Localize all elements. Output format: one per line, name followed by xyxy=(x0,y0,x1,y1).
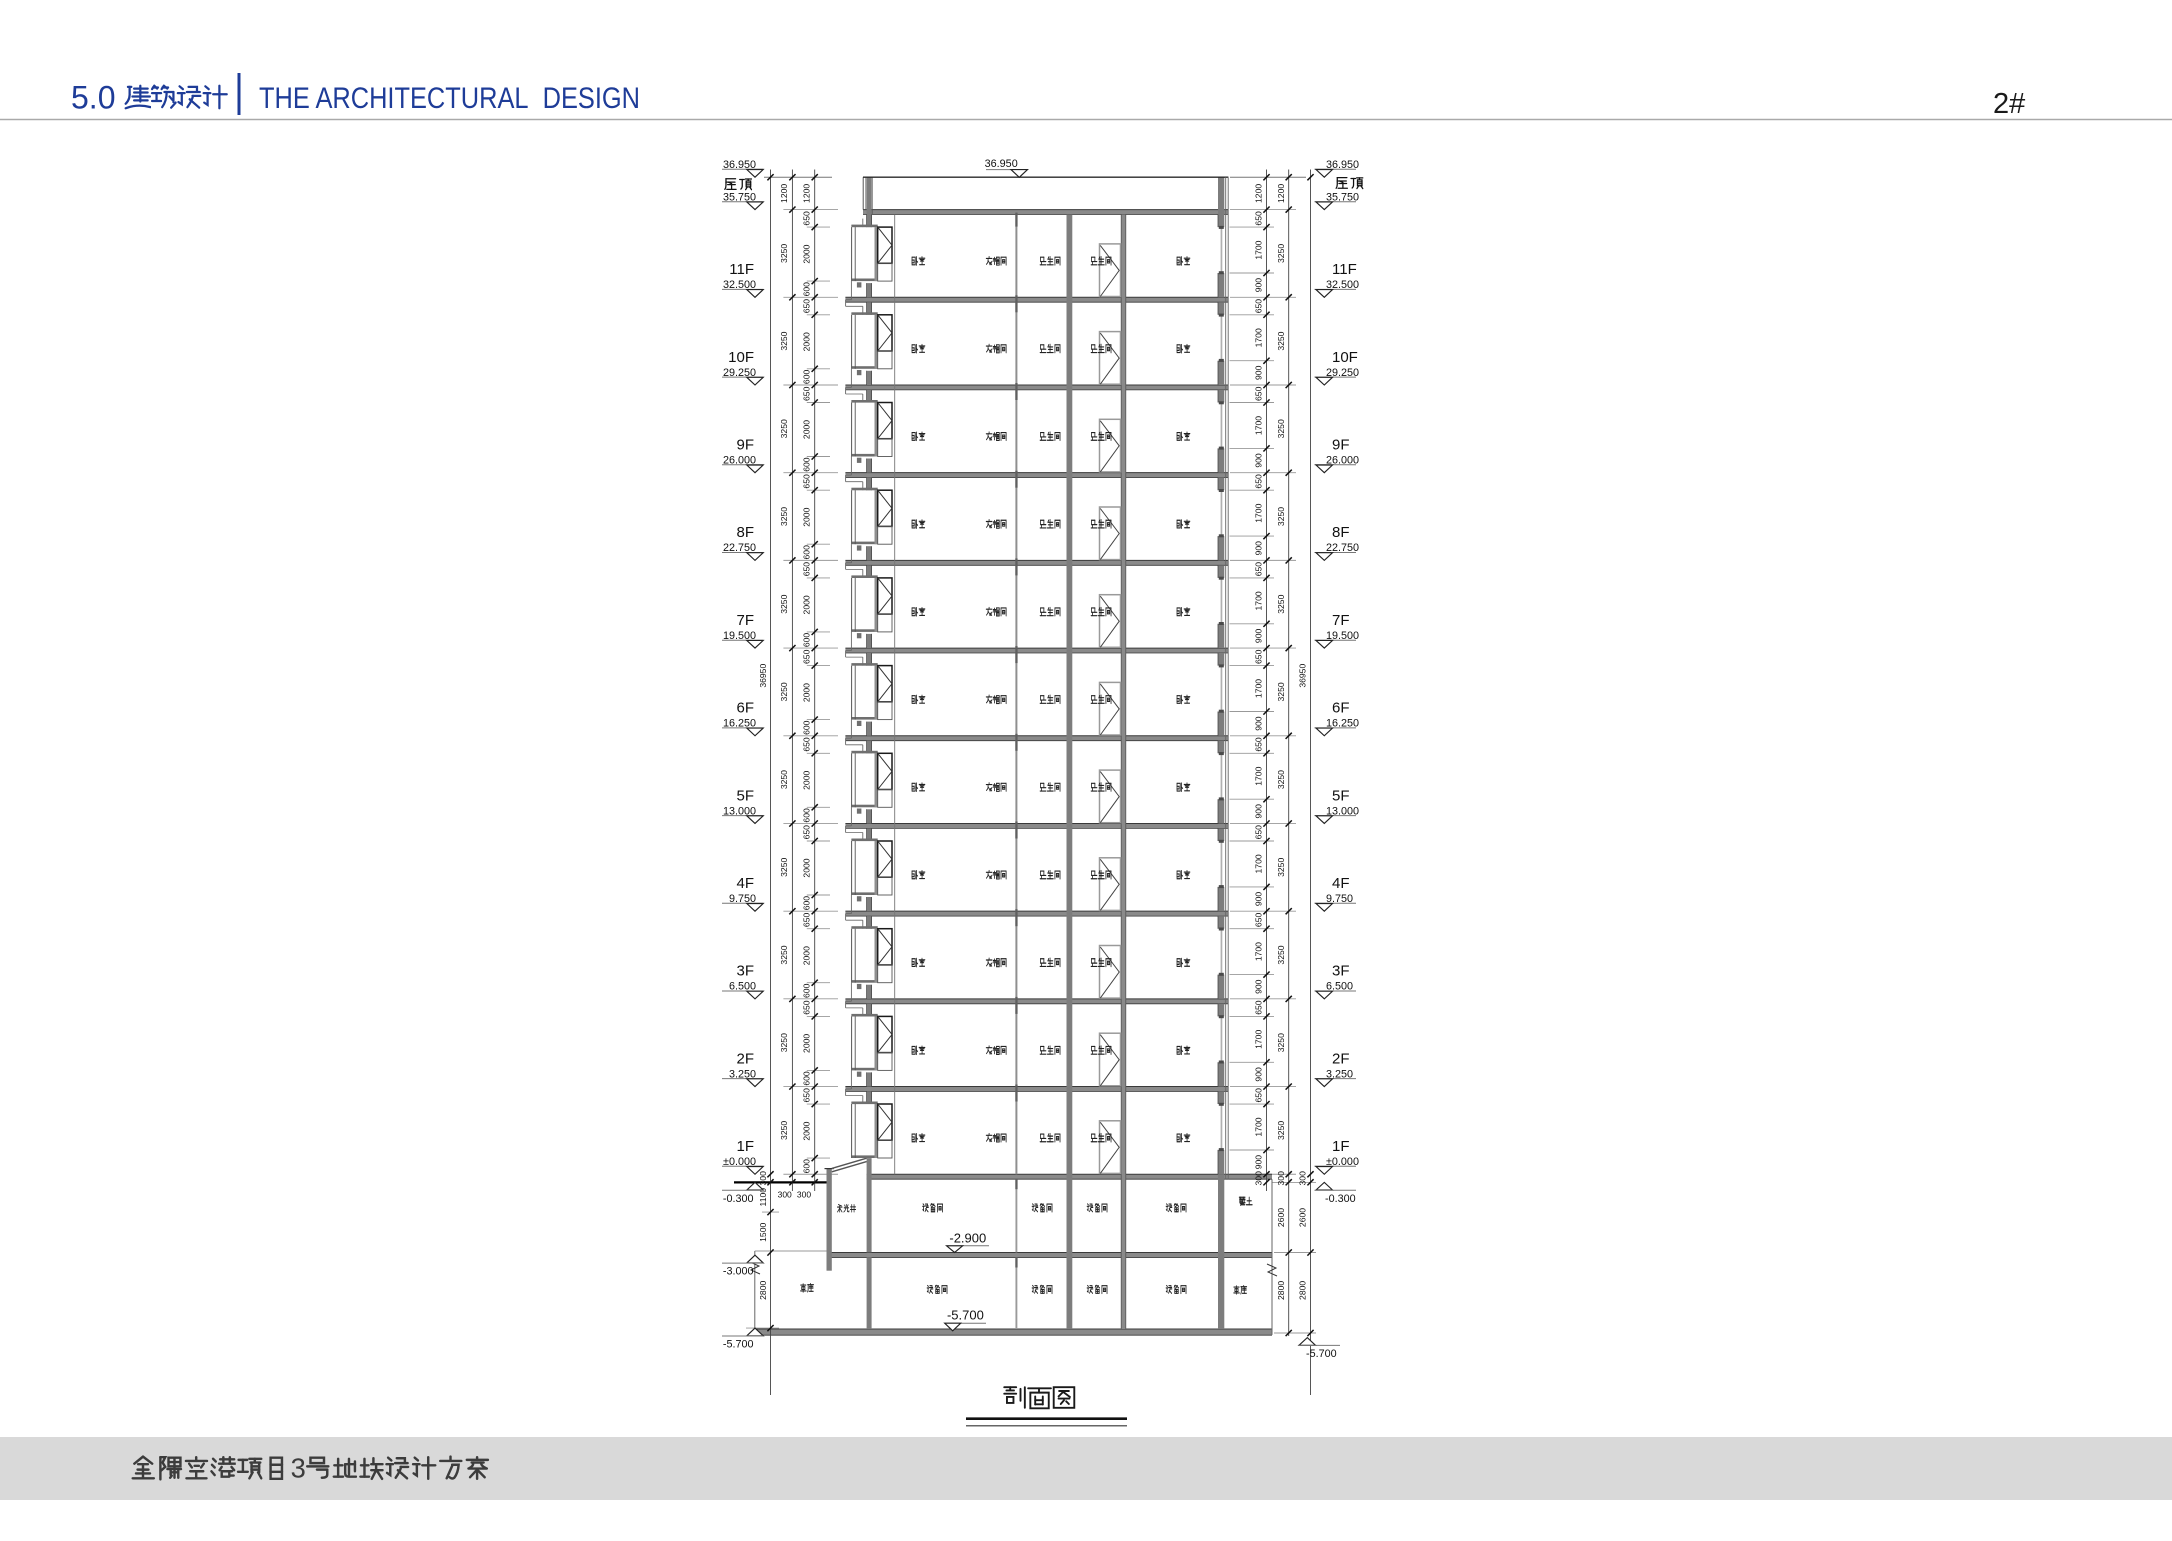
svg-text:36950: 36950 xyxy=(758,664,768,688)
svg-text:10F: 10F xyxy=(728,349,754,366)
svg-text:2#: 2# xyxy=(1993,88,2025,120)
svg-text:1700: 1700 xyxy=(1254,328,1264,347)
svg-text:2F: 2F xyxy=(736,1050,754,1067)
svg-text:5.0: 5.0 xyxy=(71,80,115,116)
svg-text:3250: 3250 xyxy=(1276,1121,1286,1140)
svg-text:-2.900: -2.900 xyxy=(949,1230,986,1245)
svg-text:900: 900 xyxy=(1254,1067,1264,1082)
svg-text:4F: 4F xyxy=(736,875,754,892)
svg-text:600: 600 xyxy=(801,983,811,998)
svg-text:-3.000: -3.000 xyxy=(723,1266,754,1278)
svg-text:900: 900 xyxy=(1254,541,1264,556)
svg-text:650: 650 xyxy=(1254,474,1264,489)
svg-text:1700: 1700 xyxy=(1254,679,1264,698)
svg-text:THE ARCHITECTURAL DESIGN: THE ARCHITECTURAL DESIGN xyxy=(259,82,640,115)
svg-text:650: 650 xyxy=(1254,649,1264,664)
svg-text:900: 900 xyxy=(1254,804,1264,819)
svg-text:3250: 3250 xyxy=(779,770,789,789)
svg-text:36950: 36950 xyxy=(1298,664,1308,688)
svg-text:900: 900 xyxy=(1254,716,1264,731)
svg-text:2000: 2000 xyxy=(801,1034,811,1053)
svg-text:3250: 3250 xyxy=(1276,244,1286,263)
svg-text:1700: 1700 xyxy=(1254,1030,1264,1049)
svg-text:3250: 3250 xyxy=(1276,594,1286,613)
svg-text:1200: 1200 xyxy=(1254,184,1264,203)
svg-text:650: 650 xyxy=(801,1088,811,1103)
svg-text:650: 650 xyxy=(801,825,811,840)
svg-text:2000: 2000 xyxy=(801,244,811,263)
svg-text:3250: 3250 xyxy=(779,507,789,526)
svg-text:650: 650 xyxy=(1254,737,1264,752)
svg-text:2000: 2000 xyxy=(801,507,811,526)
svg-text:2600: 2600 xyxy=(1298,1208,1308,1227)
svg-text:3250: 3250 xyxy=(1276,858,1286,877)
svg-text:900: 900 xyxy=(1254,453,1264,468)
svg-text:600: 600 xyxy=(801,808,811,823)
svg-text:600: 600 xyxy=(801,282,811,297)
svg-text:650: 650 xyxy=(1254,386,1264,401)
svg-text:900: 900 xyxy=(1254,892,1264,907)
svg-text:2F: 2F xyxy=(1332,1050,1350,1067)
svg-text:2800: 2800 xyxy=(1298,1281,1308,1300)
svg-text:300: 300 xyxy=(778,1190,792,1200)
svg-text:650: 650 xyxy=(1254,913,1264,928)
svg-text:3250: 3250 xyxy=(1276,945,1286,964)
svg-text:2000: 2000 xyxy=(801,595,811,614)
svg-text:3250: 3250 xyxy=(1276,770,1286,789)
svg-text:1500: 1500 xyxy=(758,1223,768,1242)
svg-text:1700: 1700 xyxy=(1254,854,1264,873)
svg-text:-0.300: -0.300 xyxy=(1325,1193,1356,1205)
svg-text:3250: 3250 xyxy=(779,419,789,438)
svg-text:3250: 3250 xyxy=(779,331,789,350)
svg-text:3250: 3250 xyxy=(779,858,789,877)
svg-text:1700: 1700 xyxy=(1254,1117,1264,1136)
svg-text:2800: 2800 xyxy=(758,1281,768,1300)
svg-text:650: 650 xyxy=(1254,1000,1264,1015)
svg-text:3: 3 xyxy=(291,1452,306,1483)
svg-text:6F: 6F xyxy=(1332,700,1350,717)
svg-text:300: 300 xyxy=(797,1190,811,1200)
svg-text:300: 300 xyxy=(1276,1171,1286,1186)
svg-text:2800: 2800 xyxy=(1276,1281,1286,1300)
svg-text:3F: 3F xyxy=(736,963,754,980)
svg-text:300: 300 xyxy=(758,1171,768,1186)
svg-text:600: 600 xyxy=(801,633,811,648)
svg-text:650: 650 xyxy=(801,913,811,928)
svg-text:11F: 11F xyxy=(1332,261,1357,278)
svg-text:650: 650 xyxy=(1254,1088,1264,1103)
svg-text:2000: 2000 xyxy=(801,332,811,351)
svg-text:650: 650 xyxy=(801,386,811,401)
svg-text:600: 600 xyxy=(801,545,811,560)
svg-text:3250: 3250 xyxy=(779,244,789,263)
svg-text:-5.700: -5.700 xyxy=(723,1339,754,1351)
svg-text:5F: 5F xyxy=(736,787,754,804)
svg-text:600: 600 xyxy=(801,1071,811,1086)
svg-text:-5.700: -5.700 xyxy=(1306,1348,1337,1360)
svg-text:1700: 1700 xyxy=(1254,942,1264,961)
svg-text:1200: 1200 xyxy=(1276,184,1286,203)
svg-text:8F: 8F xyxy=(1332,524,1350,541)
svg-text:650: 650 xyxy=(801,211,811,226)
svg-text:900: 900 xyxy=(1254,365,1264,380)
svg-text:2000: 2000 xyxy=(801,1121,811,1140)
svg-text:900: 900 xyxy=(1254,278,1264,293)
svg-text:650: 650 xyxy=(801,562,811,577)
svg-text:36.950: 36.950 xyxy=(985,158,1018,170)
svg-text:600: 600 xyxy=(801,457,811,472)
svg-text:11F: 11F xyxy=(729,261,754,278)
svg-text:1700: 1700 xyxy=(1254,503,1264,522)
svg-text:3250: 3250 xyxy=(1276,419,1286,438)
svg-text:650: 650 xyxy=(801,474,811,489)
svg-text:3F: 3F xyxy=(1332,963,1350,980)
svg-text:9F: 9F xyxy=(1332,436,1350,453)
svg-text:7F: 7F xyxy=(736,612,754,629)
svg-text:3250: 3250 xyxy=(1276,682,1286,701)
svg-text:-5.700: -5.700 xyxy=(947,1308,984,1323)
svg-text:3250: 3250 xyxy=(779,1033,789,1052)
svg-text:3250: 3250 xyxy=(1276,507,1286,526)
svg-text:2000: 2000 xyxy=(801,420,811,439)
svg-text:300: 300 xyxy=(1298,1171,1308,1186)
svg-text:8F: 8F xyxy=(736,524,754,541)
svg-text:3250: 3250 xyxy=(779,594,789,613)
svg-text:650: 650 xyxy=(801,1000,811,1015)
svg-text:900: 900 xyxy=(1254,979,1264,994)
svg-text:650: 650 xyxy=(1254,211,1264,226)
svg-text:6F: 6F xyxy=(736,700,754,717)
svg-text:600: 600 xyxy=(801,896,811,911)
svg-text:650: 650 xyxy=(1254,299,1264,314)
svg-text:7F: 7F xyxy=(1332,612,1350,629)
svg-text:650: 650 xyxy=(1254,562,1264,577)
svg-text:10F: 10F xyxy=(1332,349,1358,366)
svg-text:600: 600 xyxy=(801,1159,811,1174)
svg-text:1700: 1700 xyxy=(1254,766,1264,785)
svg-text:900: 900 xyxy=(1254,629,1264,644)
svg-text:2600: 2600 xyxy=(1276,1208,1286,1227)
svg-text:1700: 1700 xyxy=(1254,416,1264,435)
svg-text:3250: 3250 xyxy=(1276,1033,1286,1052)
svg-text:4F: 4F xyxy=(1332,875,1350,892)
svg-text:3250: 3250 xyxy=(779,1121,789,1140)
svg-text:1F: 1F xyxy=(736,1138,754,1155)
svg-text:650: 650 xyxy=(801,737,811,752)
svg-text:1F: 1F xyxy=(1332,1138,1350,1155)
svg-text:650: 650 xyxy=(801,649,811,664)
svg-text:900: 900 xyxy=(1254,1155,1264,1170)
svg-text:600: 600 xyxy=(801,720,811,735)
svg-text:3250: 3250 xyxy=(779,945,789,964)
svg-text:1200: 1200 xyxy=(779,184,789,203)
svg-text:2000: 2000 xyxy=(801,771,811,790)
svg-text:300: 300 xyxy=(1254,1171,1264,1186)
svg-text:3250: 3250 xyxy=(779,682,789,701)
svg-text:650: 650 xyxy=(1254,825,1264,840)
svg-text:5F: 5F xyxy=(1332,787,1350,804)
svg-text:650: 650 xyxy=(801,299,811,314)
svg-text:2000: 2000 xyxy=(801,858,811,877)
svg-text:2000: 2000 xyxy=(801,946,811,965)
svg-text:9F: 9F xyxy=(736,436,754,453)
svg-text:3250: 3250 xyxy=(1276,331,1286,350)
svg-text:-0.300: -0.300 xyxy=(723,1193,754,1205)
svg-text:1200: 1200 xyxy=(801,184,811,203)
svg-text:600: 600 xyxy=(801,370,811,385)
svg-text:1700: 1700 xyxy=(1254,591,1264,610)
svg-text:1700: 1700 xyxy=(1254,240,1264,259)
svg-text:2000: 2000 xyxy=(801,683,811,702)
